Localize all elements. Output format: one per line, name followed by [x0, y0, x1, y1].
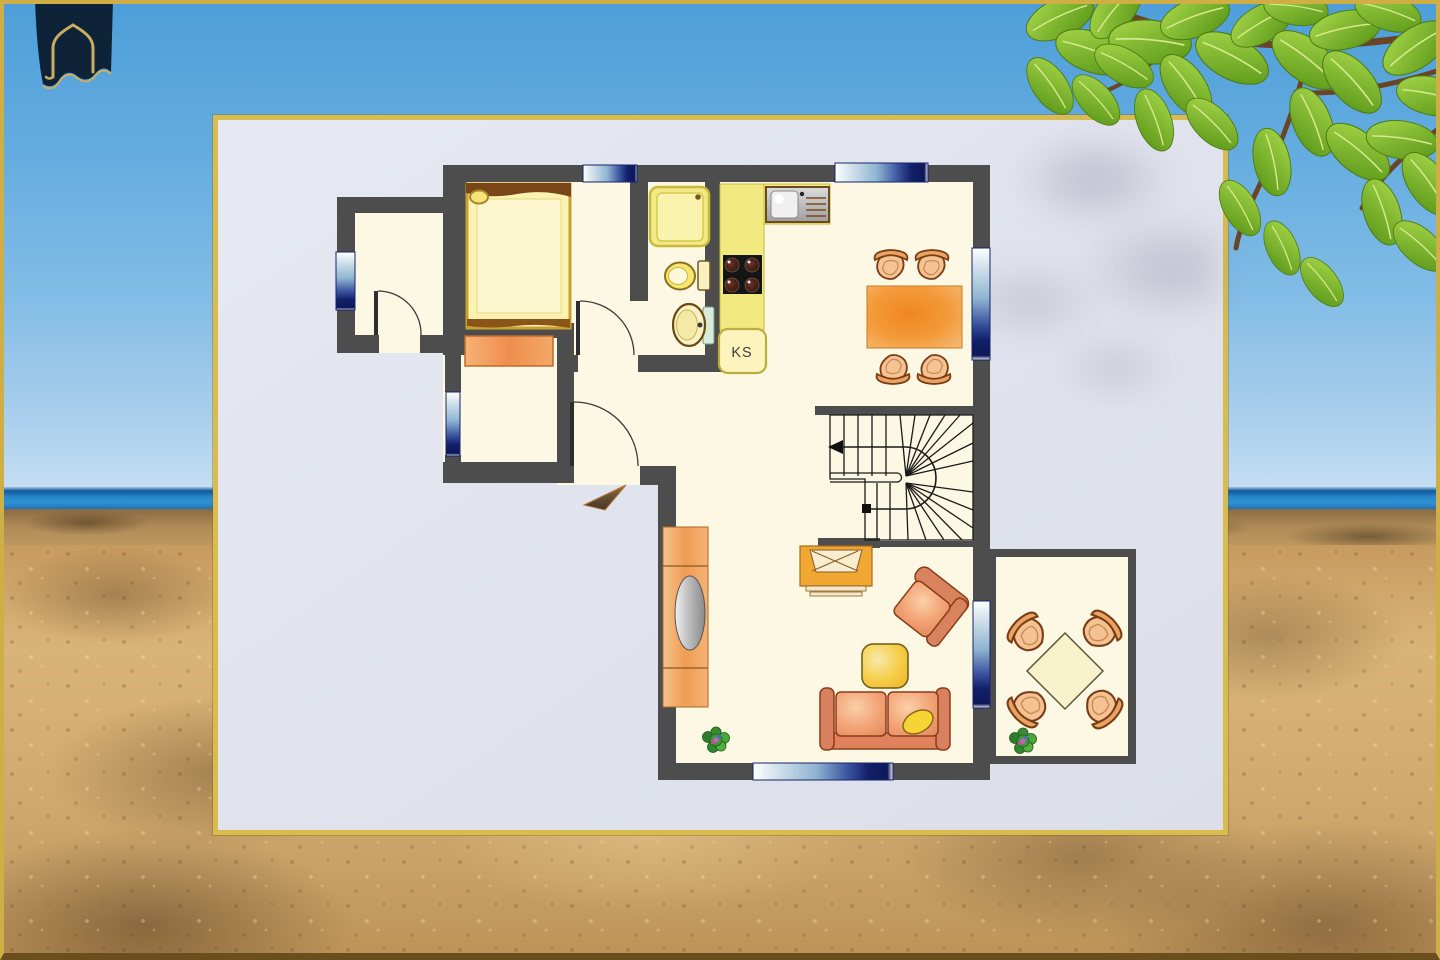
- fridge-label: KS: [731, 345, 752, 361]
- window: [446, 392, 460, 456]
- toilet-tank: [698, 261, 710, 290]
- leaf-cluster: [1017, 0, 1440, 314]
- window: [753, 763, 893, 780]
- dining-table: [867, 286, 962, 348]
- window: [583, 165, 637, 182]
- dresser: [465, 336, 553, 366]
- arched-house-logo-icon: [25, 0, 125, 105]
- terrace: [992, 553, 1132, 760]
- entrance-arrow-icon: [584, 485, 626, 510]
- window: [835, 163, 928, 182]
- scene: KS: [0, 0, 1440, 960]
- window: [972, 248, 990, 360]
- tv: [675, 576, 705, 650]
- coffee-table: [862, 644, 908, 688]
- tree-leaves: [1010, 0, 1440, 330]
- window: [336, 252, 355, 310]
- bed-lamp: [470, 191, 488, 204]
- sofa: [820, 688, 950, 750]
- window: [973, 601, 990, 708]
